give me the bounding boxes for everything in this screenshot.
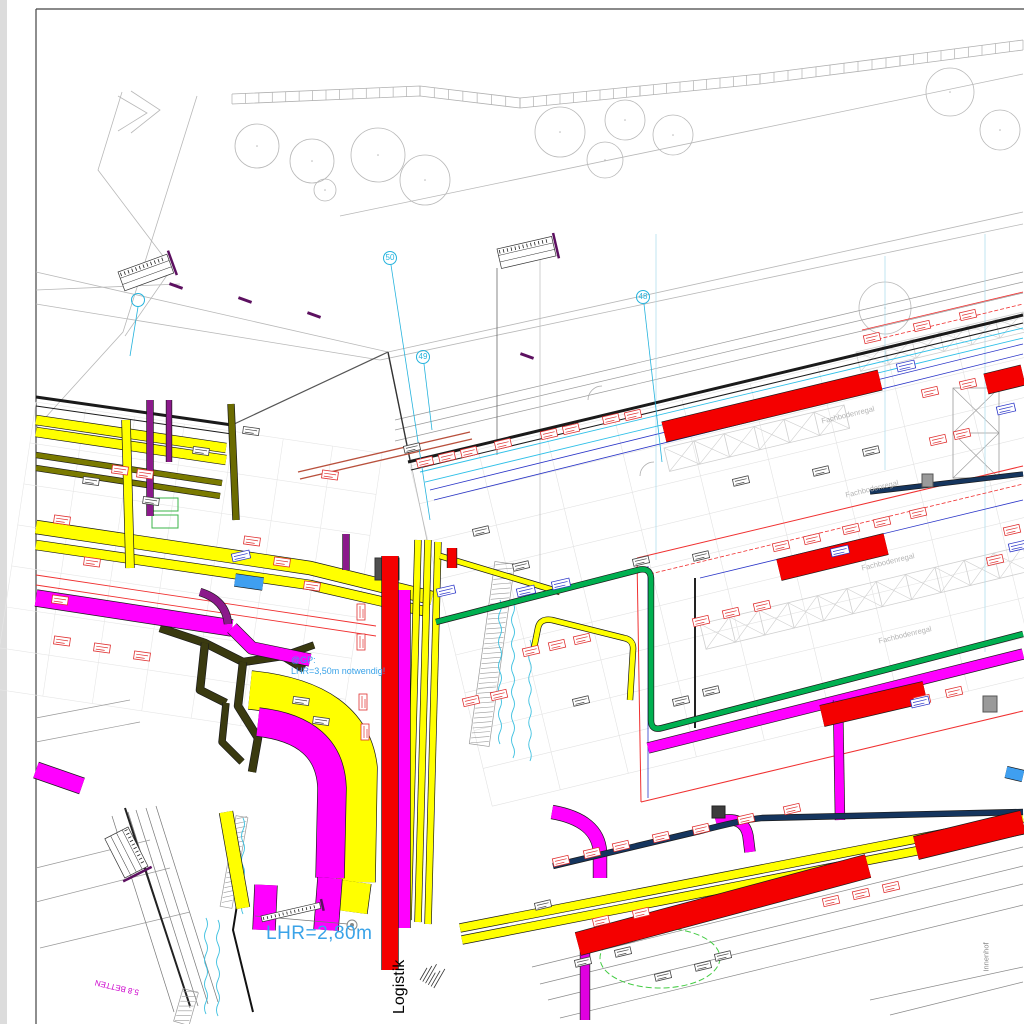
micro-label [54, 515, 71, 525]
cad-site-plan-viewport: @GP: LHR=3,50m notwendig! LHR=2,80m Logi… [0, 0, 1024, 1024]
plan-box [983, 696, 997, 712]
micro-label [702, 686, 719, 696]
micro-label [1003, 524, 1020, 535]
shelf-rack-divider [754, 427, 760, 450]
micro-label-box [873, 516, 890, 527]
micro-label-box [842, 523, 859, 534]
plan-polyline [118, 96, 147, 131]
micro-label-box [548, 639, 565, 650]
micro-label-box [490, 689, 507, 700]
plan-line [125, 808, 190, 1006]
note-lhr-height: LHR=2,80m [266, 924, 372, 943]
shelf-rack-divider [784, 419, 790, 442]
text-sim-block [420, 961, 445, 988]
survey-mark [307, 311, 321, 319]
micro-label-box [694, 961, 711, 971]
wall-hatch-line [175, 1017, 190, 1024]
wall-hatch-line [178, 1007, 193, 1015]
plan-box [152, 515, 178, 528]
shelf-rack-divider [724, 434, 730, 457]
micro-label [52, 595, 69, 605]
label-innenhof: Innenhof [982, 942, 990, 971]
duct-run [440, 556, 560, 592]
micro-label [572, 696, 589, 706]
label-block-frame [497, 236, 556, 268]
micro-label [548, 639, 565, 650]
shelf-rack-divider [964, 560, 970, 585]
wall-hatch-line [176, 1012, 191, 1020]
micro-label [783, 803, 800, 814]
tree-center-dot [672, 134, 674, 136]
insulation-wave [205, 918, 208, 1014]
micro-label-box [783, 803, 800, 814]
plan-path [640, 462, 654, 476]
plan-line [36, 700, 130, 718]
micro-label-box [852, 888, 869, 899]
wall-hatch-line [484, 640, 502, 646]
tree-center-dot [559, 131, 561, 133]
grid-bubble-49: 49 [419, 353, 428, 361]
micro-label-box [803, 533, 820, 544]
micro-label [694, 961, 711, 971]
wall-hatch-line [475, 704, 493, 710]
micro-label [692, 823, 709, 834]
fence-line [232, 50, 1023, 108]
micro-label-box [572, 696, 589, 706]
micro-label [522, 645, 539, 656]
micro-label-box [822, 895, 839, 906]
structural-grid [546, 433, 628, 773]
shelf-rack-divider [814, 412, 820, 435]
micro-label-box [357, 634, 365, 650]
micro-label [84, 557, 101, 567]
micro-label [361, 724, 369, 740]
plan-line [637, 558, 641, 802]
plan-line [136, 810, 198, 1006]
tree-center-dot [377, 154, 379, 156]
plan-line [36, 722, 140, 742]
micro-label [852, 888, 869, 899]
wall-hatch-line [491, 590, 509, 596]
micro-label [632, 556, 649, 566]
micro-label [472, 526, 489, 536]
plan-line [862, 292, 1023, 330]
plan-line [395, 282, 1023, 430]
structural-grid [456, 507, 1024, 655]
wall-hatch [469, 561, 515, 747]
shelf-rack-divider [759, 610, 765, 635]
wall-hatch-line [223, 894, 234, 900]
micro-label [986, 554, 1003, 565]
micro-label [134, 651, 151, 661]
micro-label-box [945, 686, 962, 697]
micro-label-box [702, 686, 719, 696]
plan-line [424, 364, 432, 430]
duct-run [986, 375, 1023, 384]
wall-hatch-line [471, 734, 489, 740]
micro-label-box [472, 526, 489, 536]
micro-label-box [882, 881, 899, 892]
duct-run [226, 812, 243, 908]
micro-label-box [714, 951, 731, 961]
plan-line [340, 74, 1023, 216]
micro-label [803, 533, 820, 544]
micro-label [672, 696, 689, 706]
text-sim-line [431, 971, 440, 987]
shelf-rack-divider [847, 589, 853, 614]
micro-label-box [632, 556, 649, 566]
plan-line [644, 304, 662, 462]
wall-hatch-line [489, 610, 507, 616]
plan-line [156, 806, 218, 1002]
wall-hatch-line [474, 714, 492, 720]
micro-label [945, 686, 962, 697]
wall-hatch-line [488, 615, 506, 621]
micro-label [722, 607, 739, 618]
shelf-rack [700, 546, 1024, 649]
micro-label [822, 895, 839, 906]
wall-hatch-line [478, 684, 496, 690]
tree-center-dot [624, 119, 626, 121]
plan-line [388, 212, 1023, 352]
duct-run [36, 770, 82, 786]
plan-line [232, 352, 388, 425]
tree-center-dot [604, 159, 606, 161]
micro-label-box [959, 309, 976, 320]
wall-hatch-line [485, 635, 503, 641]
duct-run [1006, 772, 1023, 776]
note-lhr-requirement: LHR=3,50m notwendig! [291, 667, 385, 676]
micro-label [913, 320, 930, 331]
wall-hatch-line [222, 899, 233, 905]
text-sim-line [420, 968, 427, 980]
micro-label [772, 540, 789, 551]
micro-label [882, 881, 899, 892]
micro-label-box [812, 466, 829, 476]
micro-label [692, 551, 709, 561]
plan-line [870, 967, 1023, 1000]
plan-line [420, 328, 1023, 472]
survey-mark-tick [238, 296, 252, 304]
plan-line [40, 912, 190, 948]
micro-label-box [909, 507, 926, 518]
tree-center-dot [324, 189, 326, 191]
micro-label-box [753, 600, 770, 611]
micro-label [573, 633, 590, 644]
micro-label-box [512, 561, 529, 571]
survey-mark [520, 352, 534, 360]
micro-label [1008, 540, 1024, 552]
grid-bubble-50: 50 [386, 254, 395, 262]
micro-label-box [522, 645, 539, 656]
plan-line [130, 307, 138, 356]
wall-hatch-line [486, 625, 504, 631]
wall-hatch-line [493, 580, 511, 586]
micro-label [112, 465, 129, 475]
wall-hatch-line [479, 675, 497, 681]
duct-run [916, 822, 1023, 848]
text-sim-line [428, 973, 435, 985]
wall-hatch-line [473, 719, 491, 725]
wall-hatch-line [487, 620, 505, 626]
shelf-rack-divider [935, 567, 941, 592]
micro-label [654, 971, 671, 981]
duct-run [534, 620, 633, 700]
survey-mark-tick [520, 352, 534, 360]
tree-center-dot [949, 91, 951, 93]
plan-line [380, 224, 1023, 360]
micro-label [862, 446, 879, 456]
micro-label [842, 523, 859, 534]
micro-label-box [357, 604, 365, 620]
survey-mark-tick [307, 311, 321, 319]
note-gp-prefix: @GP: [291, 656, 316, 665]
wall-hatch-line [482, 660, 500, 666]
micro-label-box [654, 971, 671, 981]
tree-center-dot [311, 160, 313, 162]
duct-run [258, 722, 332, 878]
micro-label-box [359, 694, 367, 710]
grid-bubble-48: 48 [639, 293, 648, 301]
micro-label [462, 695, 479, 706]
micro-label-box [772, 540, 789, 551]
micro-label-box [862, 446, 879, 456]
plan-polyline [98, 92, 172, 336]
micro-label-box [462, 695, 479, 706]
wall-hatch-line [480, 670, 498, 676]
shelf-rack-divider [906, 574, 912, 599]
micro-label-box [737, 813, 754, 824]
tree-center-dot [256, 145, 258, 147]
insulation-wave [499, 600, 502, 744]
micro-label-box [929, 434, 946, 445]
plan-line [890, 982, 1023, 1015]
micro-label-box [722, 607, 739, 618]
survey-mark [169, 282, 183, 290]
duct-outline [534, 620, 633, 700]
plan-box [922, 474, 933, 487]
micro-label [614, 947, 631, 957]
tree-center-dot [999, 129, 1001, 131]
micro-label [357, 634, 365, 650]
micro-label [359, 694, 367, 710]
micro-label-box [1003, 524, 1020, 535]
duct-run [235, 580, 263, 584]
survey-mark-tick [169, 282, 183, 290]
micro-label [357, 604, 365, 620]
text-sim-line [423, 966, 432, 982]
micro-label-box [614, 947, 631, 957]
insulation-wave [512, 602, 515, 758]
dimension-label-block [102, 826, 152, 883]
shelf-rack-divider [876, 581, 882, 606]
micro-label-box [986, 554, 1003, 565]
wall-hatch-line [481, 665, 499, 671]
structural-grid [0, 402, 36, 689]
micro-label [243, 426, 260, 435]
insulation-wave [529, 640, 532, 761]
micro-label [512, 561, 529, 571]
micro-label [909, 507, 926, 518]
wall-hatch-line [482, 655, 500, 661]
micro-label [274, 557, 291, 567]
tree-center-dot [424, 179, 426, 181]
shelf-rack-divider [729, 617, 735, 642]
micro-label [812, 466, 829, 476]
micro-label-box [913, 320, 930, 331]
micro-label-box [361, 724, 369, 740]
dimension-label-block [117, 250, 178, 293]
micro-label [714, 951, 731, 961]
micro-label [737, 813, 754, 824]
survey-mark [238, 296, 252, 304]
wall-hatch-line [492, 585, 510, 591]
micro-label [732, 476, 749, 486]
micro-label [873, 516, 890, 527]
micro-label-box [692, 823, 709, 834]
micro-label [921, 386, 938, 397]
micro-label [244, 536, 261, 546]
duct-run [126, 420, 130, 568]
label-logistik: Logistik [392, 960, 408, 1014]
structural-grid [492, 658, 1024, 806]
micro-label [753, 600, 770, 611]
shelf-rack-divider [817, 596, 823, 621]
micro-label-box [692, 551, 709, 561]
dimension-label-block [496, 233, 560, 272]
micro-label [137, 469, 154, 479]
fence-line [232, 40, 1023, 98]
micro-label-box [672, 696, 689, 706]
shelf-rack-divider [788, 603, 794, 628]
duct-run [352, 882, 356, 912]
micro-label [929, 434, 946, 445]
micro-label [322, 470, 339, 480]
micro-label-box [921, 386, 938, 397]
plan-line [146, 808, 208, 1004]
site-plan-drawing [0, 0, 1024, 1024]
plan-box [712, 806, 725, 818]
micro-label [490, 689, 507, 700]
micro-label-box [1008, 540, 1024, 552]
micro-label-box [573, 633, 590, 644]
plan-line [36, 272, 388, 352]
micro-label [863, 332, 880, 343]
micro-label [94, 643, 111, 653]
micro-label [54, 636, 71, 646]
micro-label-box [732, 476, 749, 486]
wall-hatch-line [179, 1002, 194, 1010]
micro-label [304, 581, 321, 591]
micro-label-box [863, 332, 880, 343]
wall-hatch-line [479, 679, 497, 685]
wall-hatch-line [483, 650, 501, 656]
micro-label [959, 309, 976, 320]
plan-line [36, 304, 380, 360]
plan-polyline [233, 905, 253, 1012]
wall-hatch-line [475, 709, 493, 715]
